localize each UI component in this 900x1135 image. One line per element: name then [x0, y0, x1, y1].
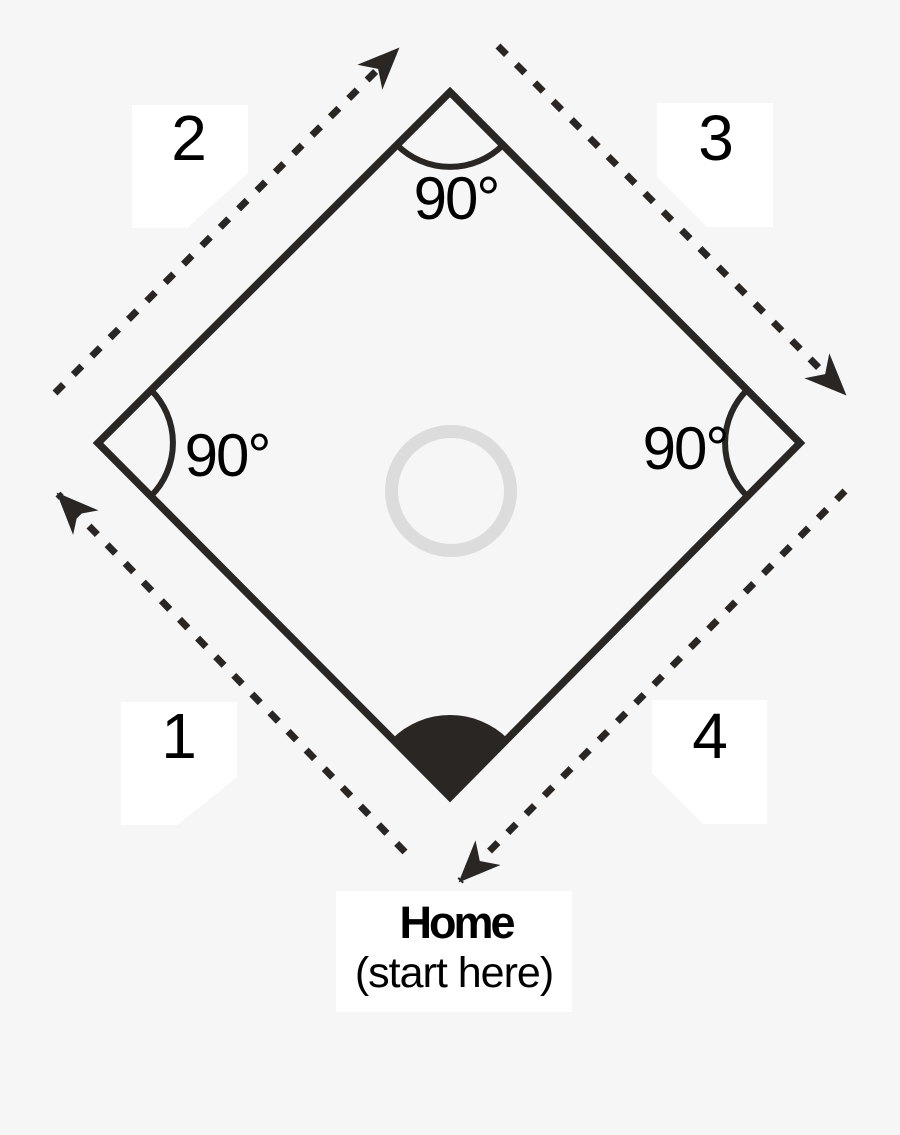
baseball-diamond-diagram: 1 2 3 4 90° 90° 90° Home (start here) — [0, 0, 900, 1135]
side-label-1: 1 — [161, 700, 197, 772]
angle-arc-right — [725, 390, 747, 496]
side-label-4: 4 — [692, 700, 728, 772]
run-arrow-side-1-icon — [58, 494, 405, 852]
angle-arc-left — [151, 390, 173, 496]
diagram-canvas: 1 2 3 4 90° 90° 90° Home (start here) — [0, 0, 900, 1135]
angle-label-left: 90° — [185, 422, 270, 489]
angle-arc-top — [397, 145, 503, 167]
angle-label-right: 90° — [643, 415, 728, 482]
pitcher-circle-ring — [392, 432, 511, 551]
run-arrow-side-2-icon — [55, 49, 398, 393]
home-plate-angle-fill — [392, 715, 508, 797]
side-label-2: 2 — [171, 102, 207, 174]
angle-label-top: 90° — [414, 165, 499, 232]
home-title: Home — [399, 897, 514, 948]
side-label-3: 3 — [698, 102, 734, 174]
run-arrow-side-4-icon — [460, 491, 845, 881]
home-subtitle: (start here) — [355, 949, 553, 997]
run-arrow-side-3-icon — [498, 46, 845, 394]
